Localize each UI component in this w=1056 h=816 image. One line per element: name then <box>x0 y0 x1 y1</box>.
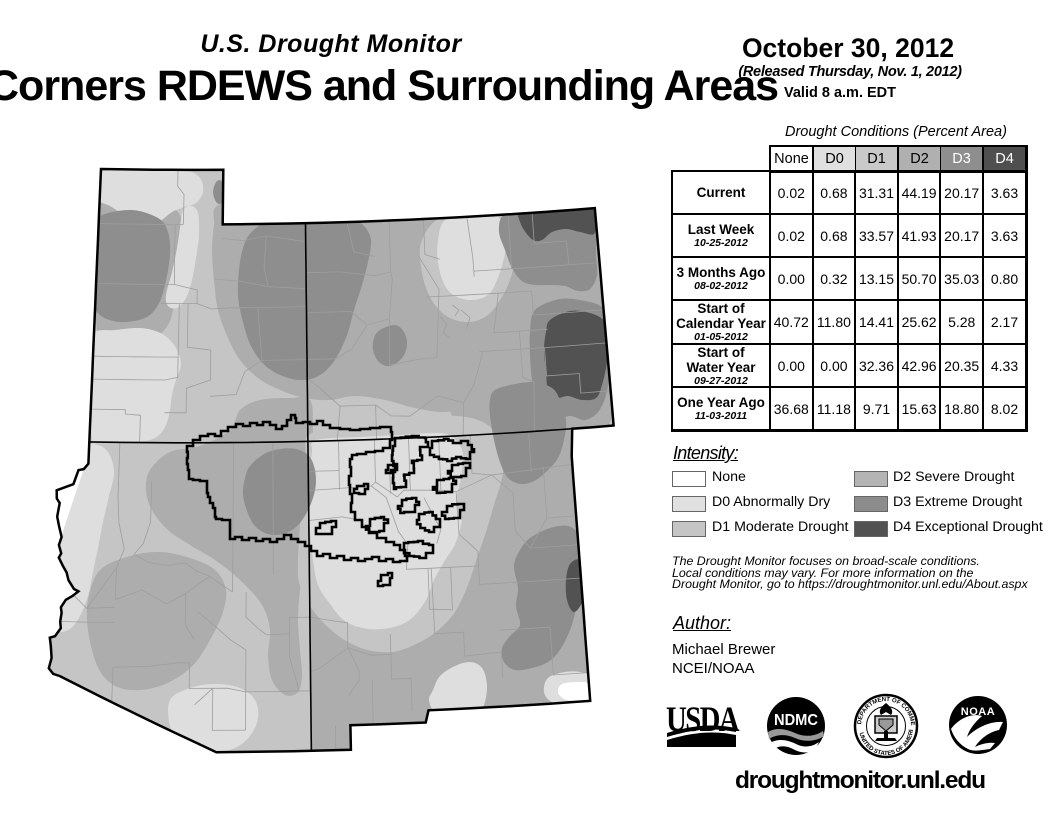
svg-text:NDMC: NDMC <box>774 712 818 729</box>
svg-text:UNITED STATES OF AMERICA: UNITED STATES OF AMERICA <box>0 0 915 757</box>
svg-text:DEPARTMENT OF COMMERCE: DEPARTMENT OF COMMERCE <box>0 0 915 726</box>
